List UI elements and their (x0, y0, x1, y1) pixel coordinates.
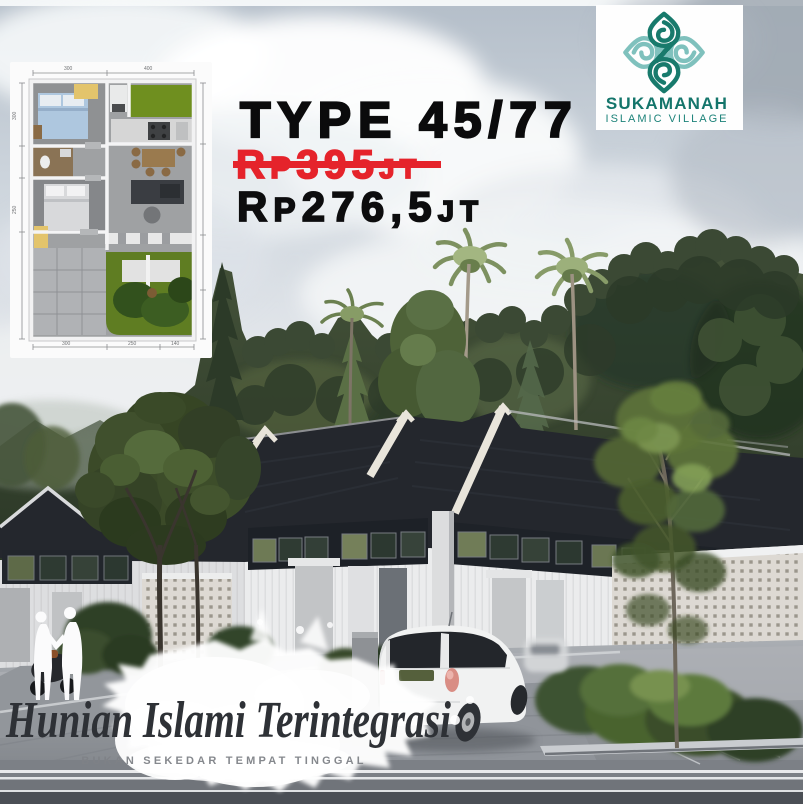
svg-text:BUKAN SEKEDAR TEMPAT TINGGAL: BUKAN SEKEDAR TEMPAT TINGGAL (81, 755, 366, 767)
svg-text:400: 400 (144, 66, 153, 72)
svg-text:140: 140 (171, 341, 180, 347)
svg-text:SUKAMANAH: SUKAMANAH (606, 94, 728, 113)
svg-text:250: 250 (12, 205, 18, 214)
svg-text:300: 300 (12, 111, 18, 120)
svg-text:300: 300 (62, 341, 71, 347)
svg-text:TYPE 45/77: TYPE 45/77 (240, 92, 579, 148)
svg-text:250: 250 (128, 341, 137, 347)
svg-text:ISLAMIC VILLAGE: ISLAMIC VILLAGE (606, 113, 729, 125)
svg-text:300: 300 (64, 66, 73, 72)
svg-text:Hunian Islami Terintegrasi: Hunian Islami Terintegrasi (5, 692, 451, 749)
